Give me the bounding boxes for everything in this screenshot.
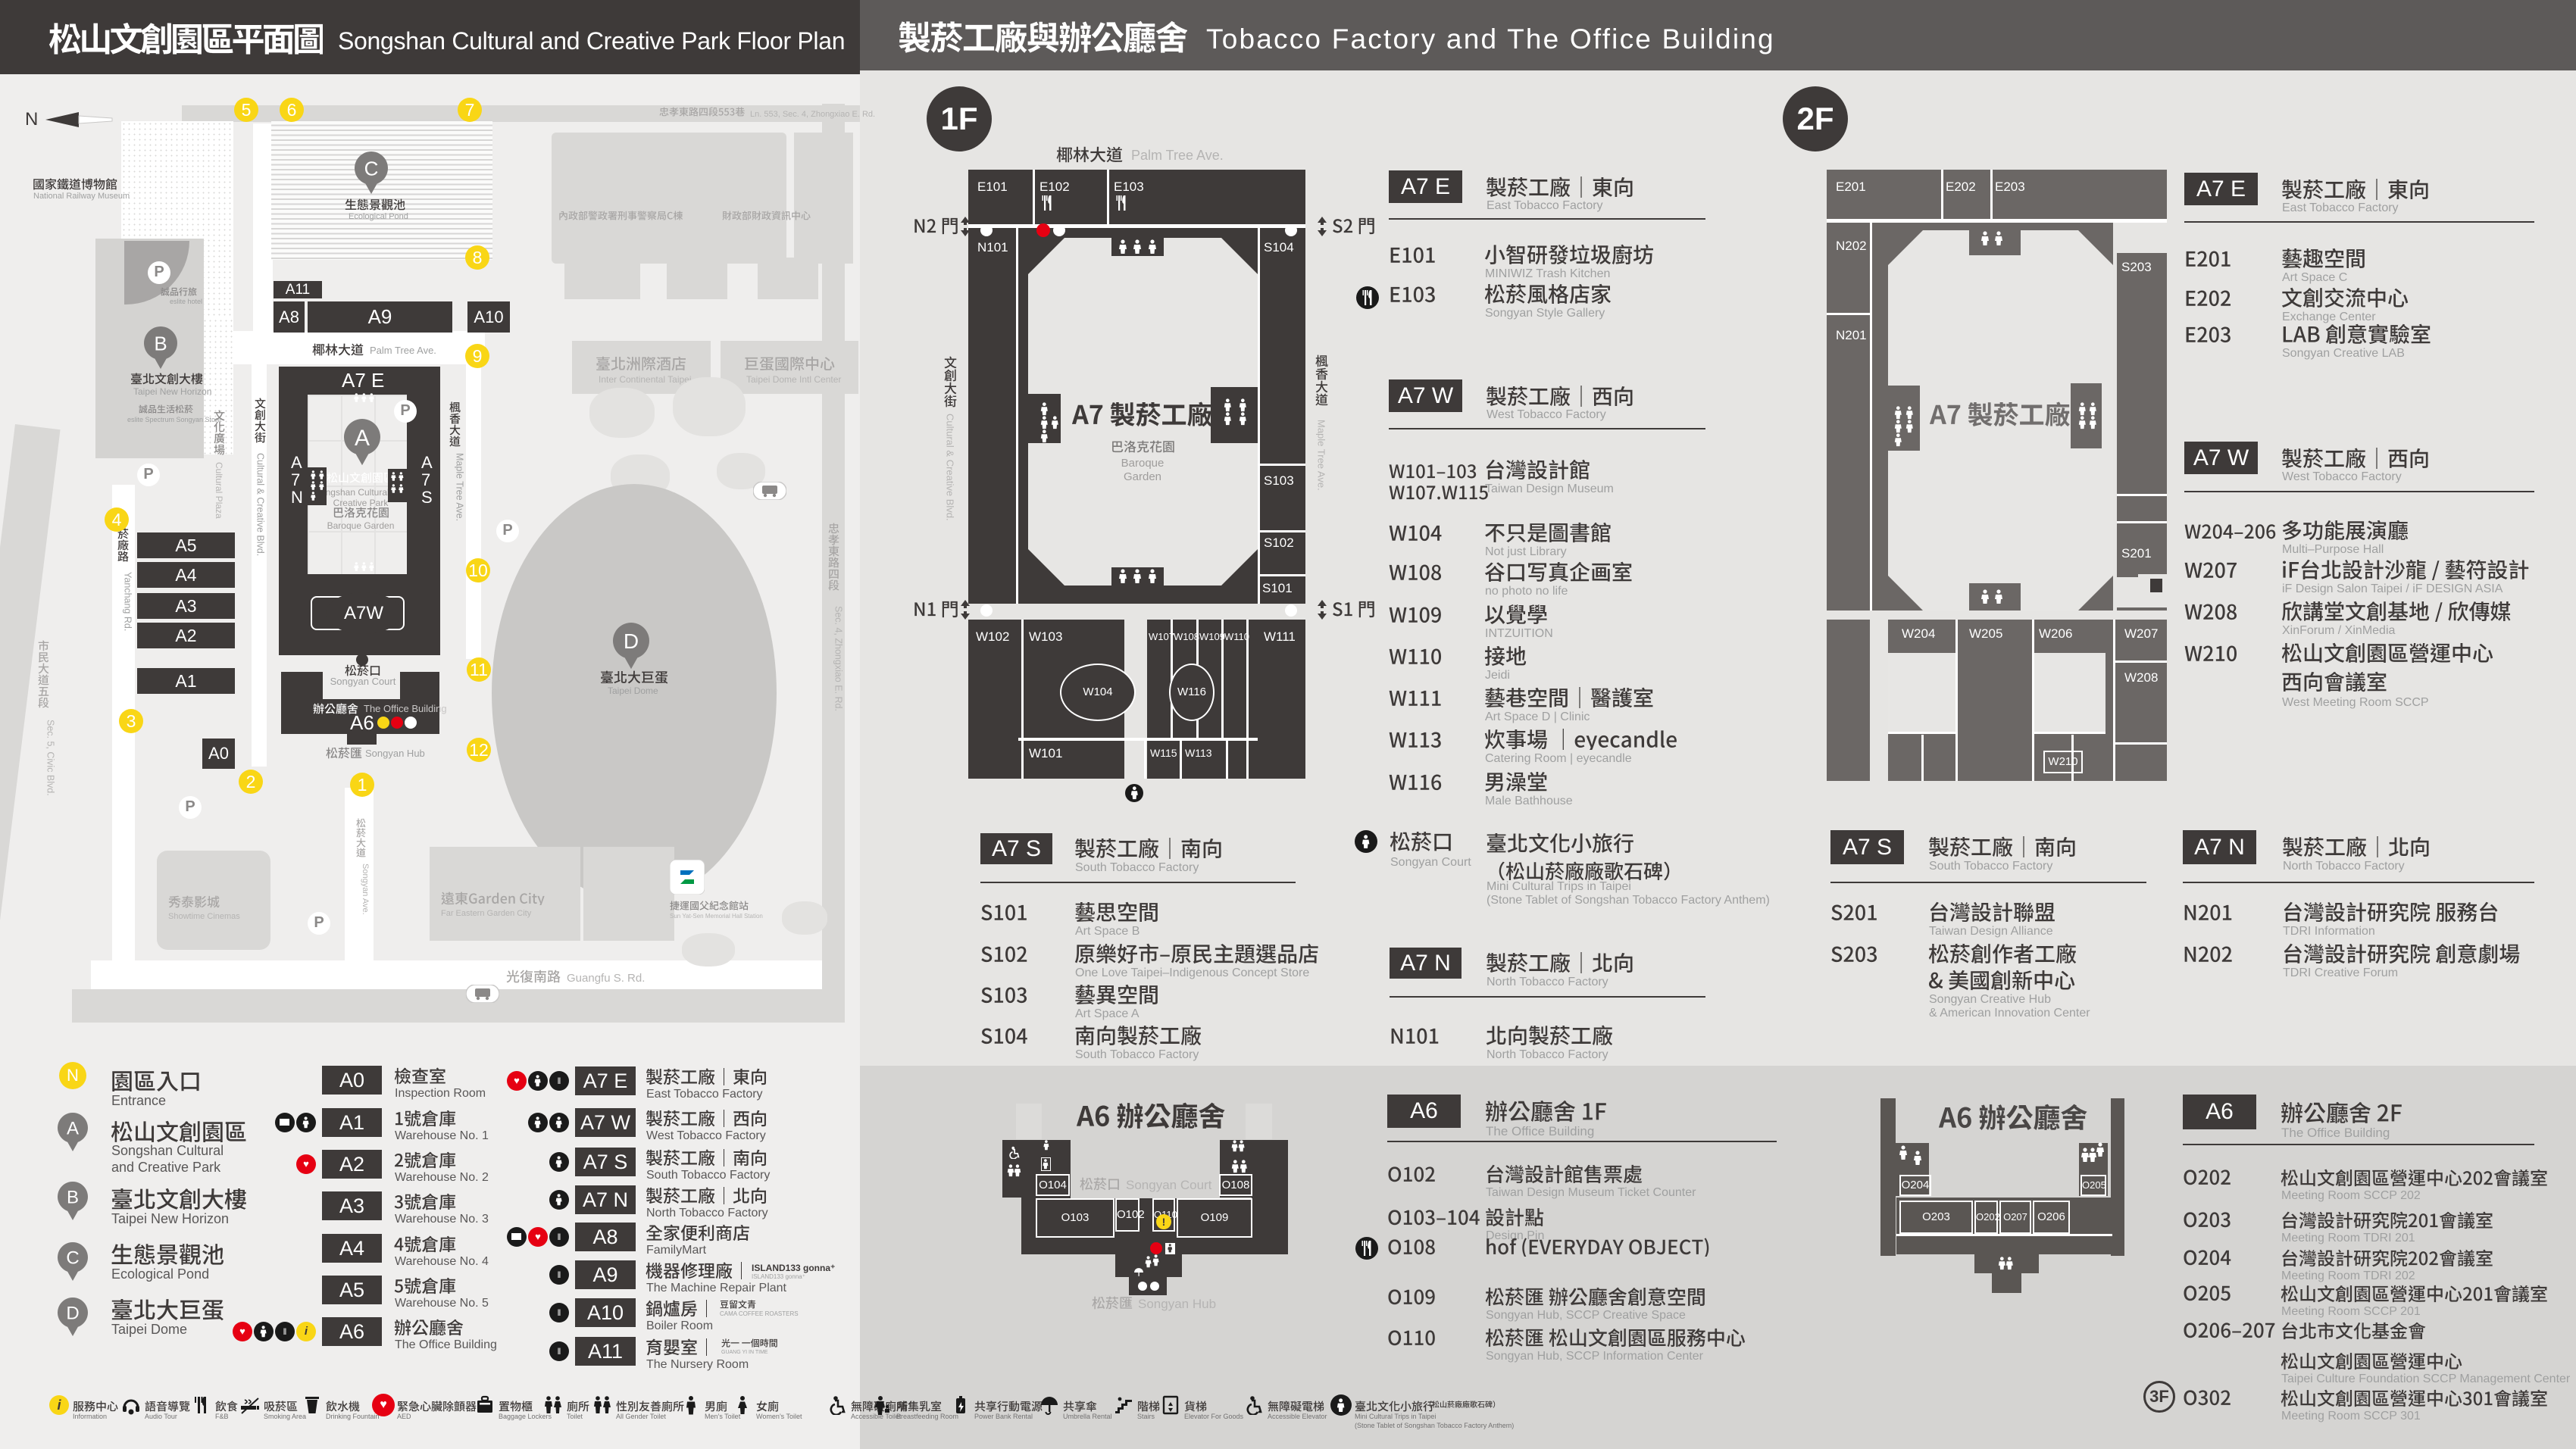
svg-text:7: 7 — [465, 100, 475, 120]
svg-text:1: 1 — [358, 775, 367, 795]
svg-text:A: A — [355, 426, 370, 451]
svg-text:D: D — [66, 1304, 79, 1324]
svg-text:11: 11 — [470, 660, 488, 679]
svg-text:10: 10 — [468, 561, 488, 580]
svg-text:6: 6 — [287, 100, 297, 120]
svg-text:4: 4 — [112, 510, 122, 529]
svg-text:D: D — [624, 629, 639, 653]
svg-text:2: 2 — [246, 772, 256, 792]
svg-text:9: 9 — [473, 346, 483, 366]
svg-text:5: 5 — [242, 100, 252, 120]
svg-text:8: 8 — [473, 248, 483, 267]
svg-text:C: C — [66, 1248, 79, 1269]
svg-text:B: B — [154, 332, 167, 354]
svg-text:12: 12 — [469, 740, 489, 760]
svg-text:C: C — [364, 157, 379, 180]
svg-text:3: 3 — [127, 711, 136, 731]
svg-text:A: A — [67, 1119, 79, 1139]
svg-text:B: B — [67, 1188, 79, 1208]
